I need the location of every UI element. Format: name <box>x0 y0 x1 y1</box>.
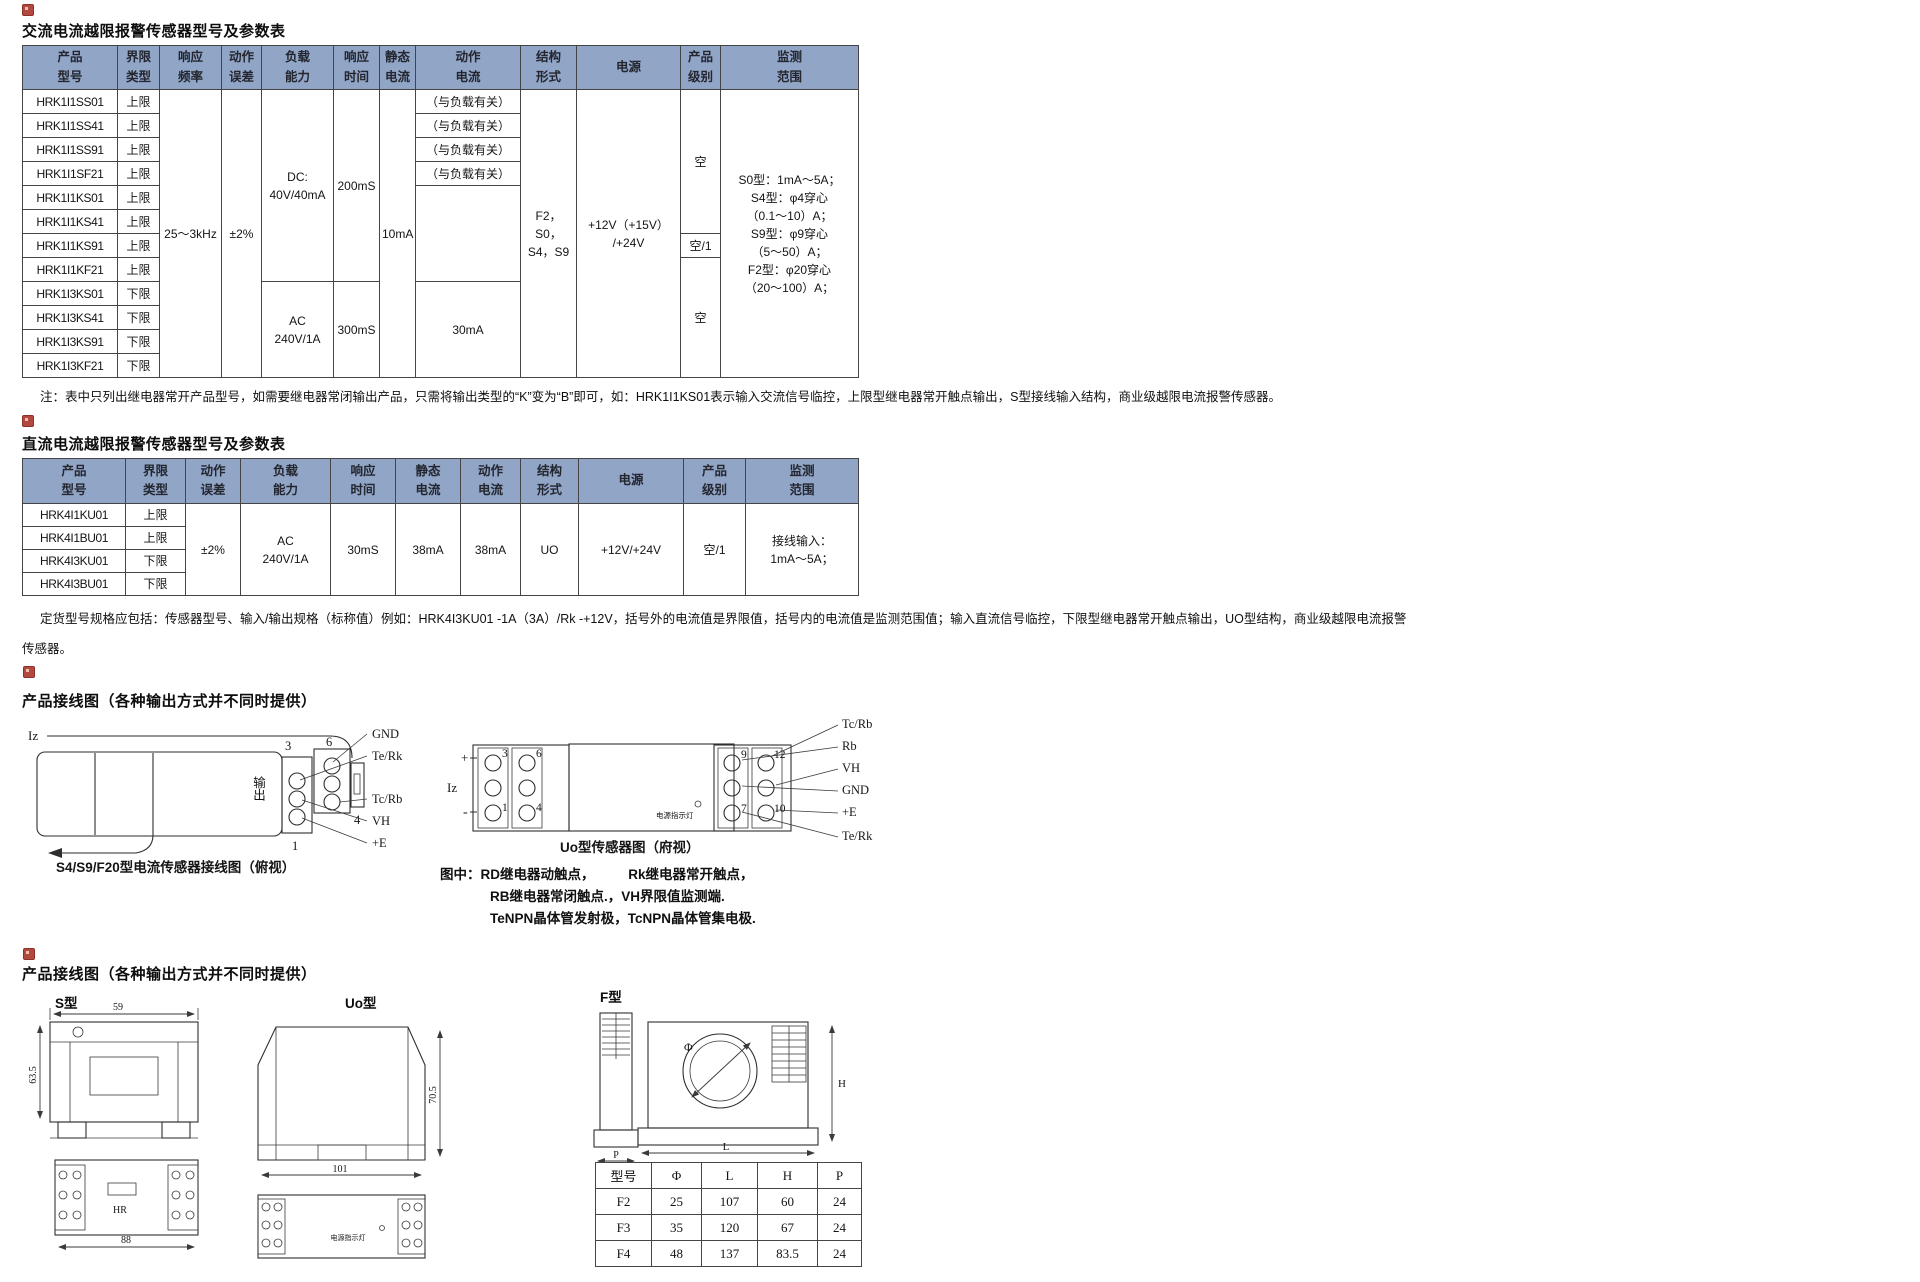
cell-limit: 上限 <box>118 258 160 282</box>
output-label: 输出 <box>251 775 265 801</box>
cell-limit: 上限 <box>126 527 186 550</box>
col-header: 界限 类型 <box>126 459 186 504</box>
cell-error: ±2% <box>222 90 262 378</box>
pin-label: Te/Rk <box>372 749 403 763</box>
dim-h: H <box>838 1078 846 1090</box>
cell-model: HRK4I3BU01 <box>23 573 126 596</box>
col-header: 负载 能力 <box>262 46 334 90</box>
wiring-legend: 图中：RD继电器动触点， Rk继电器常开触点， RB继电器常闭触点.，VH界限值… <box>440 864 756 930</box>
col-header: 响应 时间 <box>331 459 396 504</box>
cell-load: AC 240V/1A <box>241 504 331 596</box>
col-header: 动作 电流 <box>416 46 521 90</box>
dim-p: P <box>613 1150 619 1161</box>
col-header: 静态 电流 <box>380 46 416 90</box>
cell-range: 接线输入： 1mA～5A； <box>746 504 859 596</box>
col-header: L <box>702 1163 758 1189</box>
cell-limit: 上限 <box>126 504 186 527</box>
cell-action: （与负载有关） <box>416 114 521 138</box>
cell: 24 <box>818 1189 862 1215</box>
col-header: 产品 型号 <box>23 46 118 90</box>
cell: 120 <box>702 1215 758 1241</box>
cell-resp: 30mS <box>331 504 396 596</box>
header-row: 产品 型号 界限 类型 响应 频率 动作 误差 负载 能力 响应 时间 静态 电… <box>23 46 859 90</box>
dc-note-line2: 传感器。 <box>22 638 72 657</box>
col-header: H <box>758 1163 818 1189</box>
col-header: 动作 电流 <box>461 459 521 504</box>
uo-type-wiring-diagram: + Iz - 3 6 1 4 电源指示灯 <box>447 717 873 855</box>
ac-note: 注：表中只列出继电器常开产品型号，如需要继电器常闭输出产品，只需将输出类型的“K… <box>40 386 1281 405</box>
cell-action: （与负载有关） <box>416 138 521 162</box>
cell-limit: 上限 <box>118 210 160 234</box>
col-header: 监测 范围 <box>746 459 859 504</box>
cell-limit: 上限 <box>118 114 160 138</box>
cell-limit: 上限 <box>118 186 160 210</box>
dim-height: 63.5 <box>28 1066 39 1084</box>
terminal-number: 1 <box>292 839 298 853</box>
col-header: 结构 形式 <box>521 459 579 504</box>
red-bullet-icon <box>23 666 35 678</box>
col-header: 结构 形式 <box>521 46 577 90</box>
cell-static: 38mA <box>396 504 461 596</box>
power-led-label: 电源指示灯 <box>656 810 694 820</box>
dc-params-table: 产品 型号 界限 类型 动作 误差 负载 能力 响应 时间 静态 电流 动作 电… <box>22 458 859 596</box>
col-header: 产品 级别 <box>684 459 746 504</box>
red-bullet-icon <box>22 415 34 427</box>
cell-limit: 上限 <box>118 90 160 114</box>
cell-grade: 空/1 <box>681 234 721 258</box>
cell-limit: 下限 <box>118 354 160 378</box>
cell-model: HRK1I1SF21 <box>23 162 118 186</box>
pin-label: +E <box>842 805 857 819</box>
s-diagram-caption: S4/S9/F20型电流传感器接线图（俯视） <box>56 859 295 875</box>
iz-label: Iz <box>28 728 38 743</box>
cell-model: HRK1I3KF21 <box>23 354 118 378</box>
header-row: 产品 型号 界限 类型 动作 误差 负载 能力 响应 时间 静态 电流 动作 电… <box>23 459 859 504</box>
terminal-number: 6 <box>326 735 332 749</box>
pin-label: VH <box>372 814 390 828</box>
cell: 83.5 <box>758 1241 818 1267</box>
col-header: 静态 电流 <box>396 459 461 504</box>
table-row: F2 25 107 60 24 <box>596 1189 862 1215</box>
terminal-number: 3 <box>285 739 291 753</box>
dim-width: 59 <box>113 1002 123 1013</box>
cell: 48 <box>652 1241 702 1267</box>
cell-power: +12V（+15V） /+24V <box>577 90 681 378</box>
col-header: 电源 <box>579 459 684 504</box>
f-size-table: 型号 Φ L H P F2 25 107 60 24 F3 35 120 67 … <box>595 1162 862 1267</box>
cell-grade: 空/1 <box>684 504 746 596</box>
body-mark: HR <box>113 1205 127 1216</box>
terminal-number: 10 <box>774 803 786 815</box>
cell-limit: 下限 <box>118 282 160 306</box>
cell-action-blank <box>416 186 521 282</box>
cell-power: +12V/+24V <box>579 504 684 596</box>
legend-line: TeNPN晶体管发射极，TcNPN晶体管集电极. <box>440 908 756 930</box>
terminal-number: 1 <box>502 802 508 814</box>
cell-error: ±2% <box>186 504 241 596</box>
cell-model: HRK1I1SS41 <box>23 114 118 138</box>
cell: F3 <box>596 1215 652 1241</box>
col-header: 动作 误差 <box>186 459 241 504</box>
col-header: 界限 类型 <box>118 46 160 90</box>
cell-limit: 下限 <box>126 573 186 596</box>
dim-l: L <box>723 1141 730 1153</box>
f-type-front-view: Φ L H <box>638 1022 846 1153</box>
cell-limit: 上限 <box>118 234 160 258</box>
col-header: 产品 级别 <box>681 46 721 90</box>
s-type-wiring-diagram: Iz 输出 3 6 4 1 GND <box>28 727 403 875</box>
cell-grade: 空 <box>681 90 721 234</box>
table-row: HRK4I1KU01 上限 ±2% AC 240V/1A 30mS 38mA 3… <box>23 504 859 527</box>
cell: 35 <box>652 1215 702 1241</box>
col-header: 电源 <box>577 46 681 90</box>
legend-line: 图中：RD继电器动触点， Rk继电器常开触点， <box>440 864 756 886</box>
dim-length: 88 <box>121 1235 131 1246</box>
cell-resp-ac: 300mS <box>334 282 380 378</box>
cell-static: 10mA <box>380 90 416 378</box>
col-header: 动作 误差 <box>222 46 262 90</box>
cell-action: 38mA <box>461 504 521 596</box>
cell-model: HRK4I3KU01 <box>23 550 126 573</box>
s-type-top-view: HR 88 <box>55 1160 198 1247</box>
pin-label: Te/Rk <box>842 829 873 843</box>
cell-limit: 下限 <box>118 306 160 330</box>
pin-label: +E <box>372 836 387 850</box>
terminal-number: 6 <box>536 748 542 760</box>
cell-grade: 空 <box>681 258 721 378</box>
dc-note-line1: 定货型号规格应包括：传感器型号、输入/输出规格（标称值）例如：HRK4I3KU0… <box>40 608 1406 627</box>
red-bullet-icon <box>23 948 35 960</box>
dc-section-title: 直流电流越限报警传感器型号及参数表 <box>22 433 286 454</box>
cell-model: HRK4I1BU01 <box>23 527 126 550</box>
cell-model: HRK1I1KS01 <box>23 186 118 210</box>
cell-limit: 下限 <box>126 550 186 573</box>
dim-width: 101 <box>333 1164 348 1175</box>
cell-model: HRK1I1SS01 <box>23 90 118 114</box>
uo-diagram-caption: Uo型传感器图（府视） <box>560 839 700 855</box>
cell-model: HRK1I1KS91 <box>23 234 118 258</box>
cell-structure: UO <box>521 504 579 596</box>
plus-label: + <box>461 750 468 765</box>
col-header: 响应 时间 <box>334 46 380 90</box>
cell: F2 <box>596 1189 652 1215</box>
cell: 107 <box>702 1189 758 1215</box>
dim-phi: Φ <box>684 1040 693 1054</box>
cell-structure: F2，S0， S4，S9 <box>521 90 577 378</box>
legend-line: RB继电器常闭触点.，VH界限值监测端. <box>440 886 756 908</box>
col-header: 响应 频率 <box>160 46 222 90</box>
ac-section-title: 交流电流越限报警传感器型号及参数表 <box>22 20 286 41</box>
table-row: HRK1I1SS01 上限 25～3kHz ±2% DC: 40V/40mA 2… <box>23 90 859 114</box>
cell-model: HRK1I3KS91 <box>23 330 118 354</box>
terminal-number: 4 <box>354 813 361 827</box>
cell: 60 <box>758 1189 818 1215</box>
pin-label: GND <box>372 727 399 741</box>
datasheet-page: 交流电流越限报警传感器型号及参数表 产品 型号 界限 类型 响应 频率 动作 误… <box>0 0 1920 1282</box>
terminal-number: 3 <box>502 748 508 760</box>
cell: 25 <box>652 1189 702 1215</box>
cell-action: （与负载有关） <box>416 90 521 114</box>
col-header: P <box>818 1163 862 1189</box>
terminal-number: 4 <box>536 802 542 814</box>
cell-model: HRK1I3KS01 <box>23 282 118 306</box>
cell-limit: 上限 <box>118 162 160 186</box>
pin-label: Rb <box>842 739 857 753</box>
col-header: Φ <box>652 1163 702 1189</box>
cell: 137 <box>702 1241 758 1267</box>
cell-resp-dc: 200mS <box>334 90 380 282</box>
cell-model: HRK1I1SS91 <box>23 138 118 162</box>
dims-section-title: 产品接线图（各种输出方式并不同时提供） <box>22 963 317 984</box>
cell: 24 <box>818 1215 862 1241</box>
f-type-side-view: P <box>594 1013 638 1161</box>
col-header: 负载 能力 <box>241 459 331 504</box>
header-row: 型号 Φ L H P <box>596 1163 862 1189</box>
uo-type-top-view: 电源指示灯 <box>258 1195 425 1258</box>
dim-height: 70.5 <box>428 1086 439 1104</box>
cell-model: HRK4I1KU01 <box>23 504 126 527</box>
ac-params-table: 产品 型号 界限 类型 响应 频率 动作 误差 负载 能力 响应 时间 静态 电… <box>22 45 859 378</box>
cell: 24 <box>818 1241 862 1267</box>
pin-label: Tc/Rb <box>842 717 872 731</box>
cell-model: HRK1I1KF21 <box>23 258 118 282</box>
col-header: 产品 型号 <box>23 459 126 504</box>
col-header: 型号 <box>596 1163 652 1189</box>
cell: F4 <box>596 1241 652 1267</box>
pin-label: Tc/Rb <box>372 792 402 806</box>
power-led-label: 电源指示灯 <box>331 1233 366 1242</box>
uo-type-side-view: 70.5 101 <box>258 1027 440 1175</box>
cell-action-ac: 30mA <box>416 282 521 378</box>
cell-load-ac: AC 240V/1A <box>262 282 334 378</box>
red-bullet-icon <box>22 4 34 16</box>
cell-freq: 25～3kHz <box>160 90 222 378</box>
cell-load-dc: DC: 40V/40mA <box>262 90 334 282</box>
cell-action: （与负载有关） <box>416 162 521 186</box>
s-type-front-view: 59 63.5 <box>28 1002 198 1138</box>
cell-limit: 上限 <box>118 138 160 162</box>
iz-label: Iz <box>447 780 457 795</box>
cell-range: S0型：1mA～5A； S4型：φ4穿心 （0.1～10）A； S9型：φ9穿心… <box>721 90 859 378</box>
table-row: F4 48 137 83.5 24 <box>596 1241 862 1267</box>
col-header: 监测 范围 <box>721 46 859 90</box>
cell-model: HRK1I3KS41 <box>23 306 118 330</box>
table-row: F3 35 120 67 24 <box>596 1215 862 1241</box>
cell: 67 <box>758 1215 818 1241</box>
pin-label: VH <box>842 761 860 775</box>
cell-model: HRK1I1KS41 <box>23 210 118 234</box>
minus-label: - <box>463 805 468 820</box>
current-arrow <box>48 848 62 858</box>
cell-limit: 下限 <box>118 330 160 354</box>
pin-label: GND <box>842 783 869 797</box>
